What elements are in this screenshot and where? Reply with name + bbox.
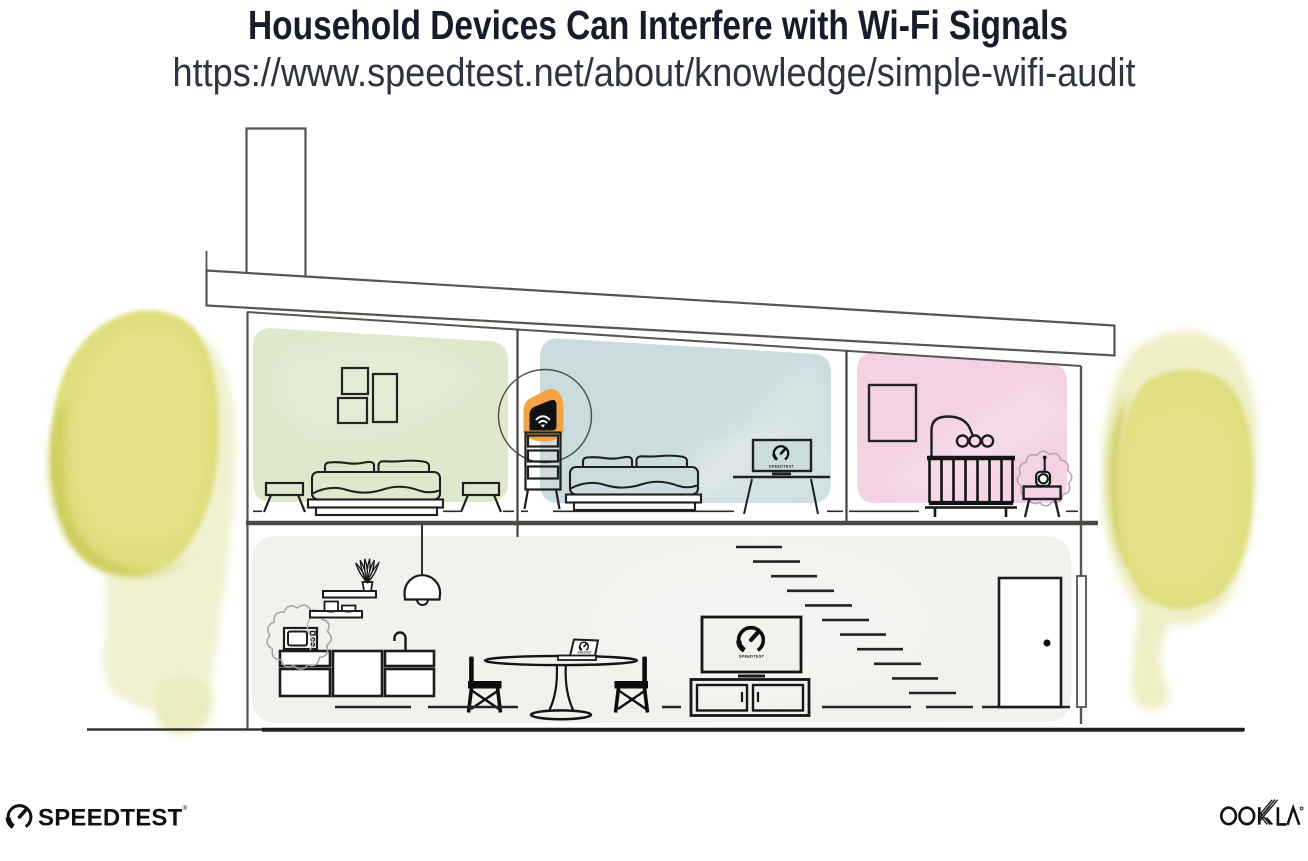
svg-text:SPEEDTEST: SPEEDTEST: [739, 654, 765, 659]
svg-text:®: ®: [183, 804, 188, 812]
svg-text:https://www.speedtest.net/abou: https://www.speedtest.net/about/knowledg…: [173, 51, 1136, 95]
svg-text:Household Devices Can Interfer: Household Devices Can Interfere with Wi-…: [248, 2, 1068, 48]
svg-text:SPEEDTEST: SPEEDTEST: [769, 465, 794, 469]
svg-text:SPEEDTEST: SPEEDTEST: [38, 805, 183, 832]
svg-text:SPEEDTEST: SPEEDTEST: [577, 652, 592, 655]
